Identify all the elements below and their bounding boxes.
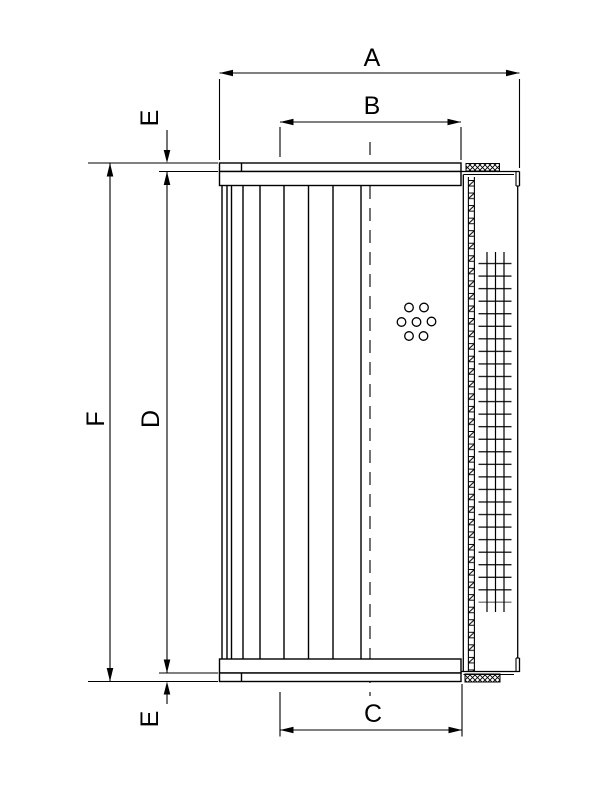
top-end-cap [220,172,462,186]
dim-label-e-bottom: E [136,711,164,728]
drawing-page: A B C F D E [0,0,612,792]
top-flange [220,163,462,172]
bypass-spring [468,177,474,672]
bottom-end-cap [220,659,462,673]
top-seal [466,164,500,172]
wire-mesh [479,252,512,612]
dim-label-c: C [364,700,382,728]
dim-label-f: F [82,411,110,426]
dim-label-e-top: E [136,110,164,127]
filter-element-technical-drawing: A B C F D E [0,0,612,792]
dim-label-b: B [364,92,381,120]
dim-label-d: D [137,410,165,428]
bottom-flange [220,673,462,682]
bottom-seal [465,674,500,682]
dim-label-a: A [364,44,381,72]
